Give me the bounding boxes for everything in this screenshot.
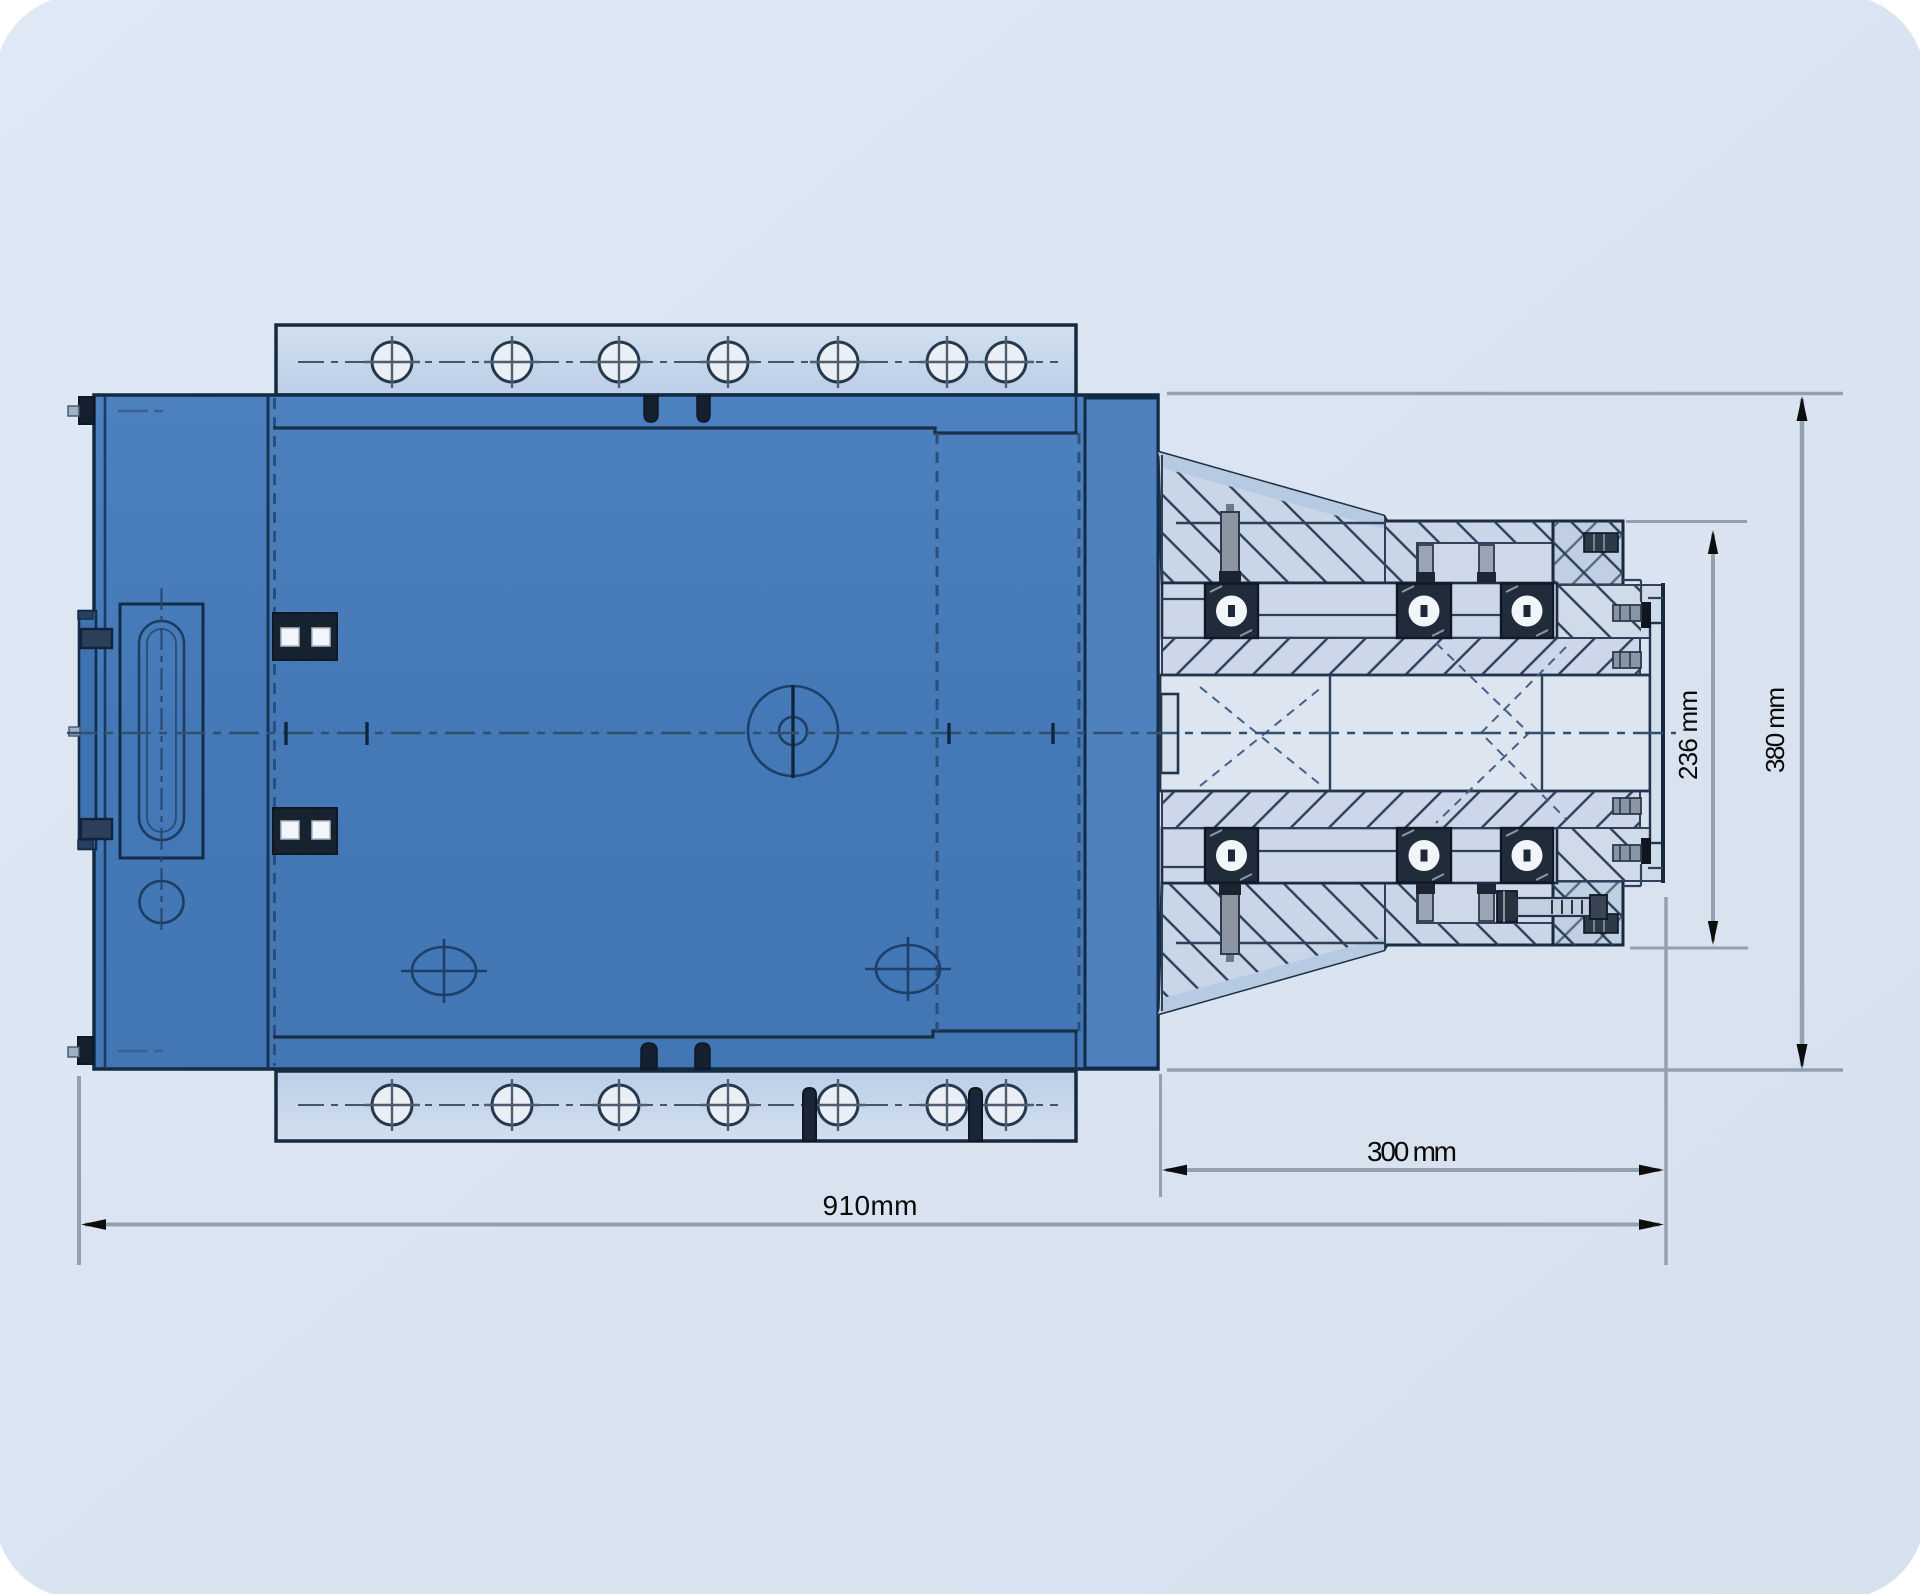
svg-text:380 mm: 380 mm: [1760, 687, 1790, 773]
svg-text:236 mm: 236 mm: [1673, 690, 1703, 780]
svg-text:300 mm: 300 mm: [1367, 1136, 1457, 1167]
svg-text:910mm: 910mm: [823, 1190, 918, 1221]
